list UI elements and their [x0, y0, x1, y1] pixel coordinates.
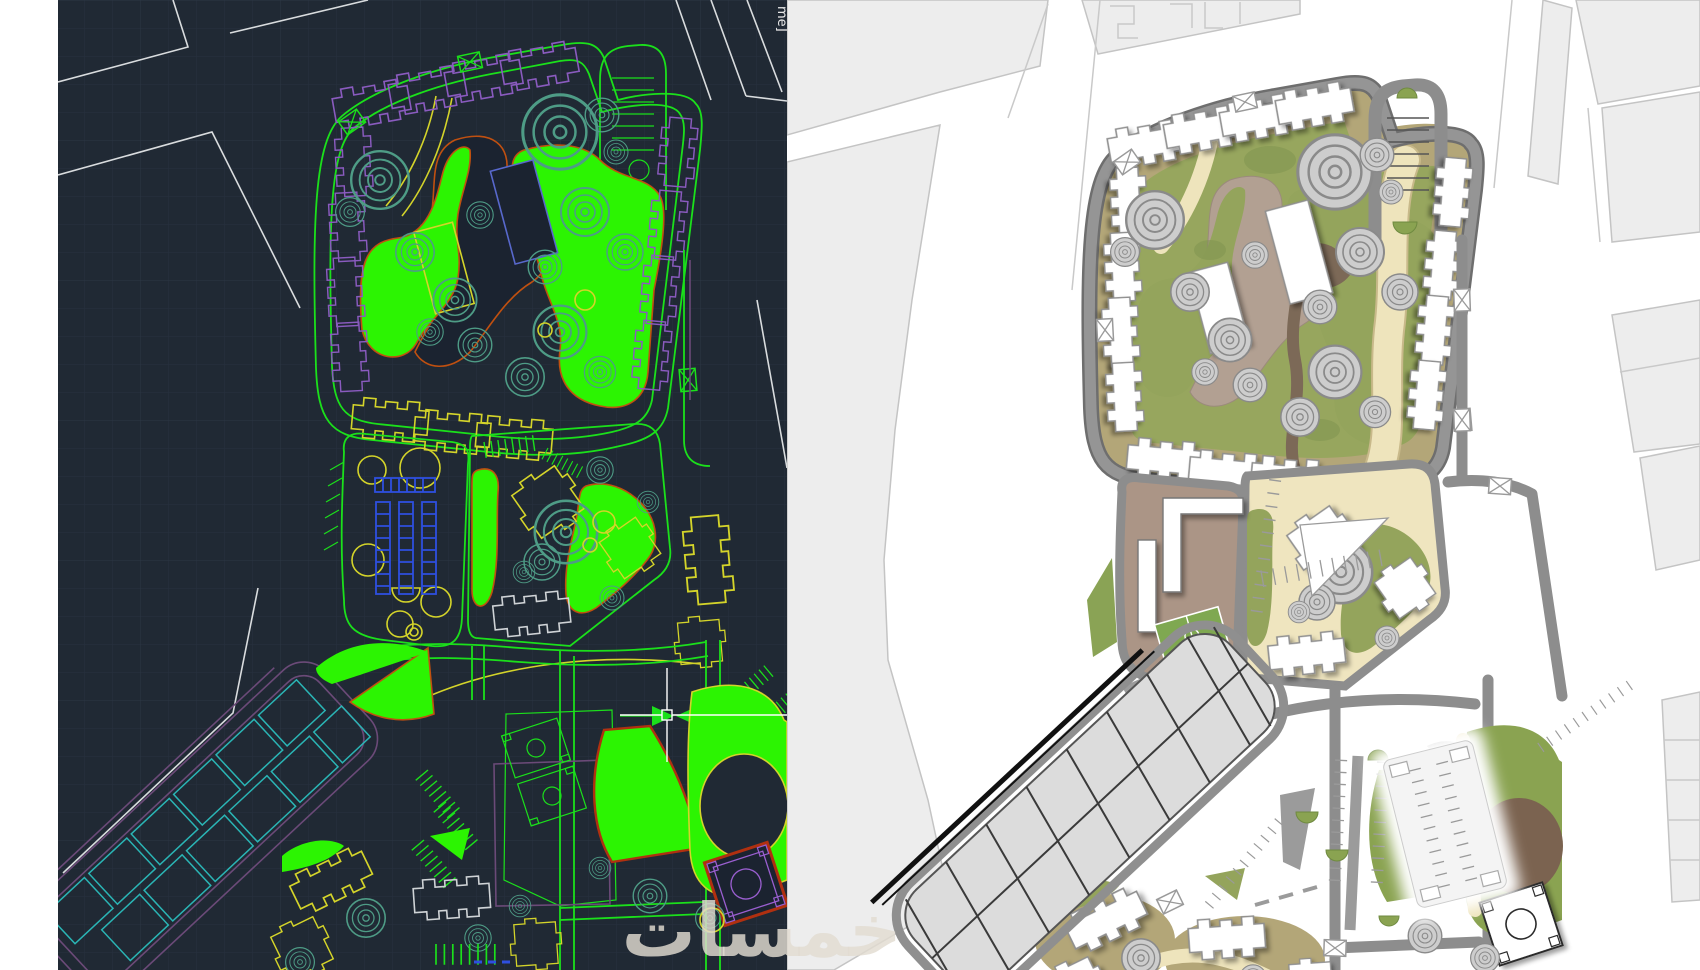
cad-panel: me] — [15, 0, 795, 970]
cad-edge-label: me] — [774, 6, 789, 32]
render-panel — [787, 0, 1700, 970]
left-margin — [0, 0, 58, 970]
comparison-canvas: me] — [0, 0, 1700, 970]
watermark-text: خمسات — [622, 888, 902, 970]
